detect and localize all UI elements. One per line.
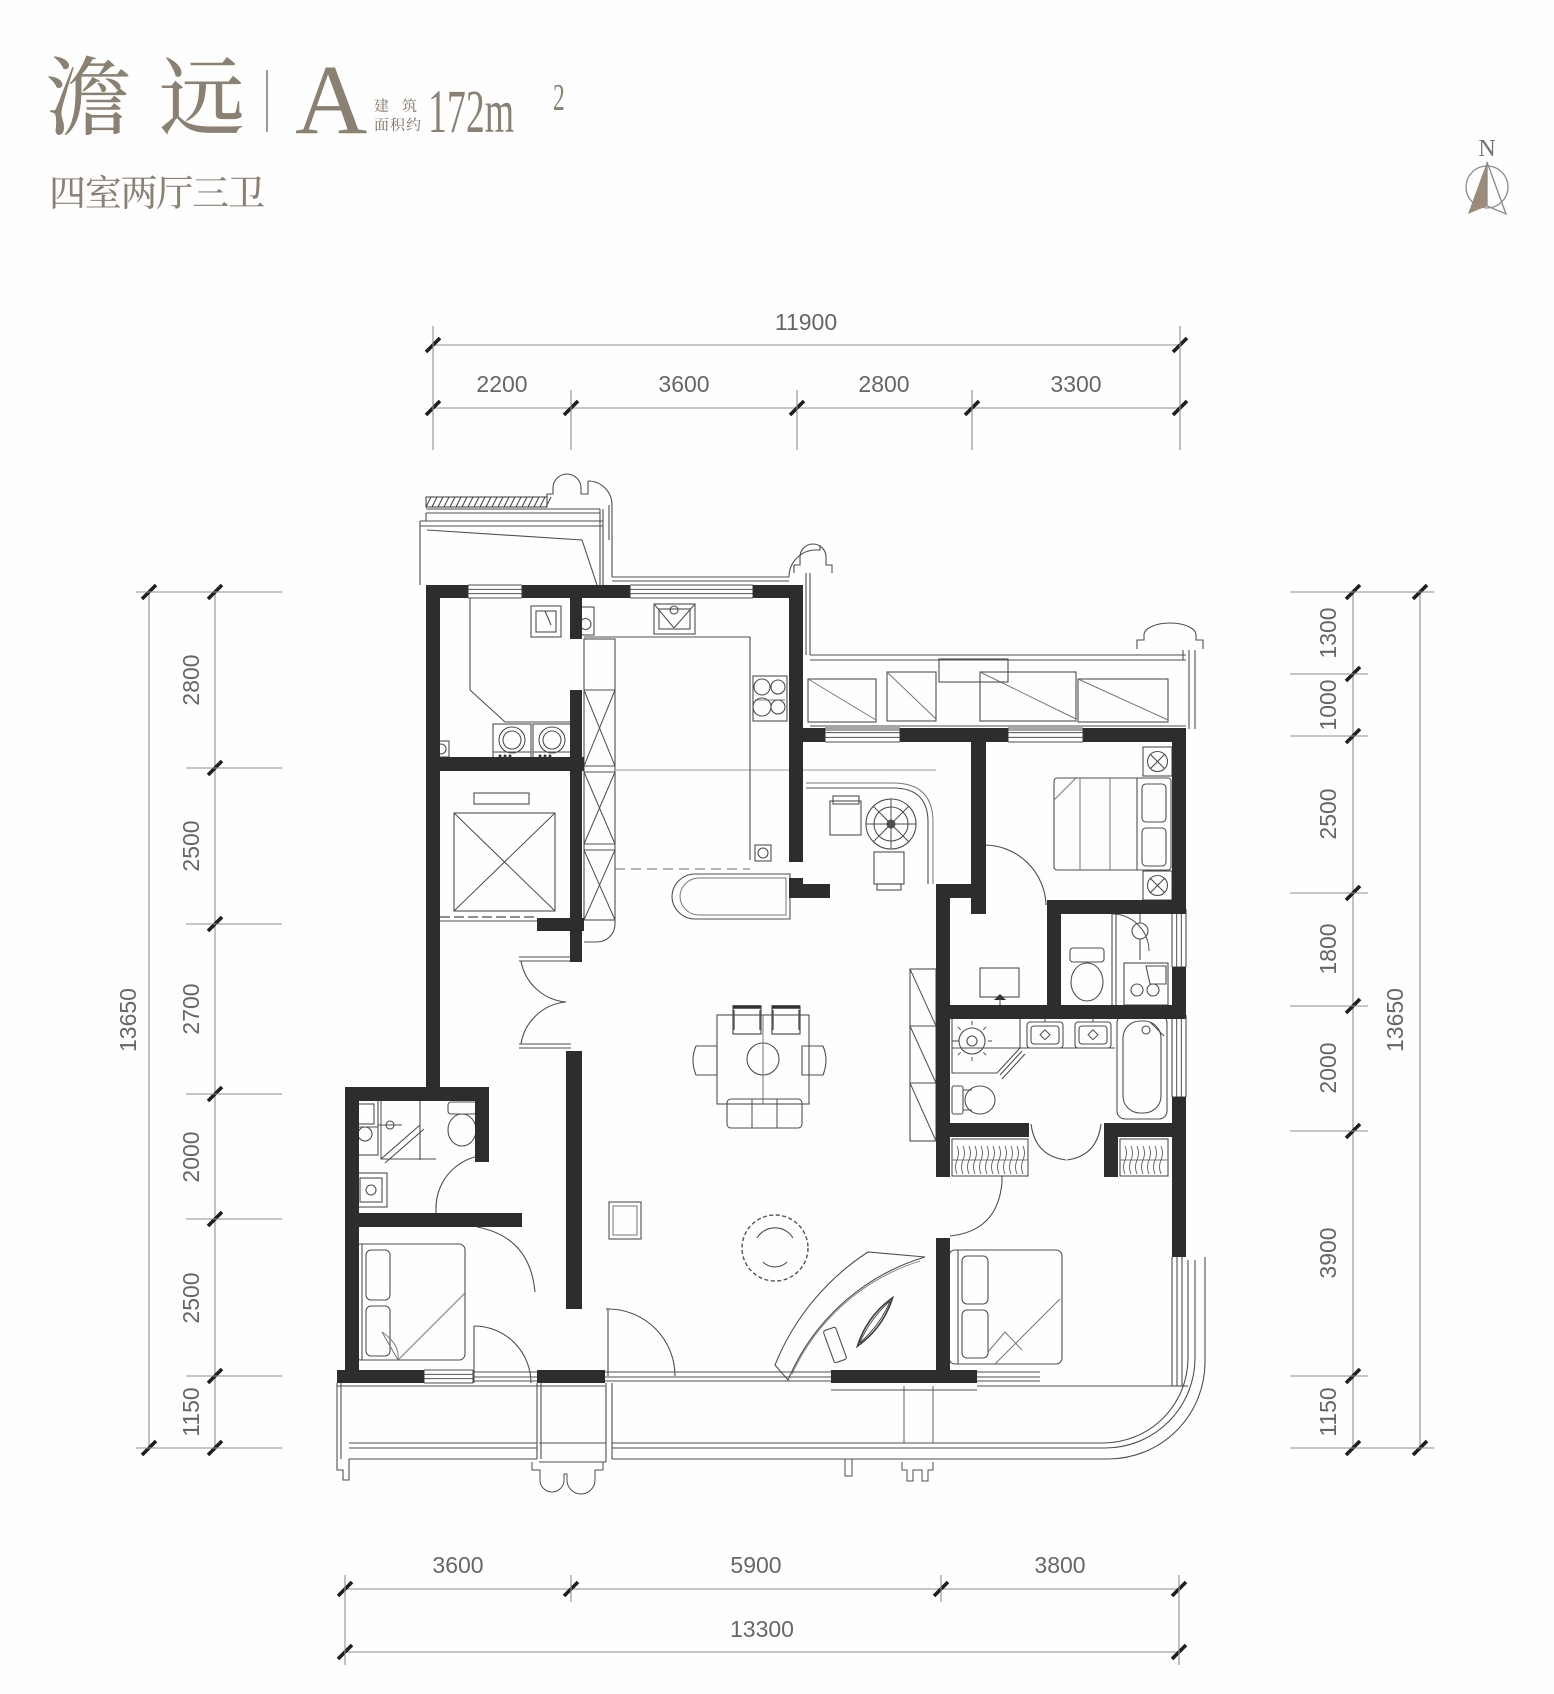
svg-text:1150: 1150 [1315, 1387, 1341, 1436]
svg-text:3600: 3600 [658, 371, 709, 397]
svg-text:13300: 13300 [730, 1616, 794, 1642]
svg-text:3900: 3900 [1315, 1227, 1341, 1278]
svg-text:1150: 1150 [178, 1387, 204, 1436]
svg-text:1000: 1000 [1315, 679, 1341, 730]
svg-text:11900: 11900 [775, 309, 837, 335]
svg-text:1800: 1800 [1315, 923, 1341, 974]
svg-text:2500: 2500 [178, 820, 204, 871]
svg-text:2000: 2000 [1315, 1042, 1341, 1093]
svg-text:13650: 13650 [115, 988, 141, 1052]
svg-text:3600: 3600 [432, 1552, 483, 1578]
svg-text:2000: 2000 [178, 1131, 204, 1182]
svg-text:2800: 2800 [858, 371, 909, 397]
svg-text:3300: 3300 [1050, 371, 1101, 397]
svg-text:2200: 2200 [476, 371, 527, 397]
svg-text:2500: 2500 [178, 1272, 204, 1323]
svg-text:A: A [295, 44, 367, 155]
svg-text:3800: 3800 [1034, 1552, 1085, 1578]
svg-text:5900: 5900 [730, 1552, 781, 1578]
svg-text:13650: 13650 [1382, 988, 1408, 1052]
svg-text:172m: 172m [428, 78, 514, 145]
svg-text:2800: 2800 [178, 654, 204, 705]
svg-text:2500: 2500 [1315, 788, 1341, 839]
svg-text:2: 2 [553, 76, 565, 118]
svg-text:N: N [1478, 136, 1495, 162]
svg-text:1300: 1300 [1315, 607, 1341, 658]
svg-text:2700: 2700 [178, 983, 204, 1034]
